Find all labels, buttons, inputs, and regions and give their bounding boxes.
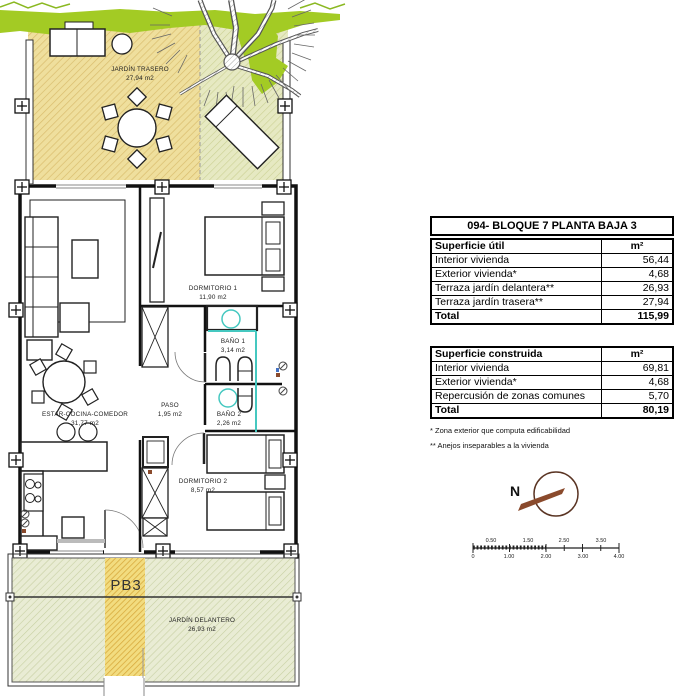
table-header-row: Superficie útil m² [431,239,673,254]
svg-text:0: 0 [471,554,474,560]
scale-bar: 0.50 1.50 2.50 3.50 0 1.00 2.00 3.00 4.0… [471,538,624,560]
plan-title: 094- BLOQUE 7 PLANTA BAJA 3 [430,216,674,236]
svg-text:BAÑO 1: BAÑO 1 [221,336,246,345]
svg-text:31,77 m2: 31,77 m2 [71,420,99,427]
footnote-1: * Zona exterior que computa edificabilid… [430,426,570,435]
compass-north-label: N [510,483,520,499]
svg-text:1.00: 1.00 [504,554,515,560]
svg-text:0.50: 0.50 [486,538,497,544]
svg-text:1.50: 1.50 [523,538,534,544]
table-row: Interior vivienda 69,81 [431,362,673,376]
room-label-jardin-trasero: JARDÍN TRASERO [111,64,169,73]
svg-text:ESTAR-COCINA-COMEDOR: ESTAR-COCINA-COMEDOR [42,411,128,418]
svg-text:4.00: 4.00 [614,554,625,560]
front-garden: PB3 JARDÍN DELANTERO 26,93 m2 [6,554,301,696]
table-row: Terraza jardín trasera** 27,94 [431,296,673,310]
svg-text:2,26 m2: 2,26 m2 [217,420,241,427]
table-total-row: Total 115,99 [431,310,673,325]
room-area-jardin-delantero: 26,93 m2 [188,626,216,633]
table-total-row: Total 80,19 [431,404,673,419]
svg-text:2.00: 2.00 [541,554,552,560]
svg-text:3.50: 3.50 [596,538,607,544]
svg-text:PASO: PASO [161,402,179,409]
room-label-jardin-delantero: JARDÍN DELANTERO [169,615,235,624]
table-row: Exterior vivienda* 4,68 [431,376,673,390]
surface-util-table: Superficie útil m² Interior vivienda 56,… [430,238,674,325]
svg-text:BAÑO 2: BAÑO 2 [217,409,242,418]
svg-text:3.00: 3.00 [578,554,589,560]
table-row: Interior vivienda 56,44 [431,254,673,268]
table-row: Exterior vivienda* 4,68 [431,268,673,282]
svg-text:2.50: 2.50 [559,538,570,544]
svg-text:DORMITORIO 1: DORMITORIO 1 [189,285,238,292]
compass-icon: N [510,472,578,516]
svg-text:3,14 m2: 3,14 m2 [221,347,245,354]
footnote-2: ** Anejos inseparables a la vivienda [430,441,549,450]
svg-text:8,57 m2: 8,57 m2 [191,487,215,494]
svg-text:DORMITORIO 2: DORMITORIO 2 [179,478,228,485]
svg-text:11,90 m2: 11,90 m2 [199,294,227,301]
table-row: Repercusión de zonas comunes 5,70 [431,390,673,404]
table-row: Terraza jardín delantera** 26,93 [431,282,673,296]
floor-plan-sheet: JARDÍN TRASERO 27,94 m2 [0,0,685,700]
svg-text:1,95 m2: 1,95 m2 [158,411,182,418]
surface-built-table: Superficie construida m² Interior vivien… [430,346,674,419]
unit-label: PB3 [110,577,141,594]
room-area-jardin-trasero: 27,94 m2 [126,75,154,82]
table-header-row: Superficie construida m² [431,347,673,362]
